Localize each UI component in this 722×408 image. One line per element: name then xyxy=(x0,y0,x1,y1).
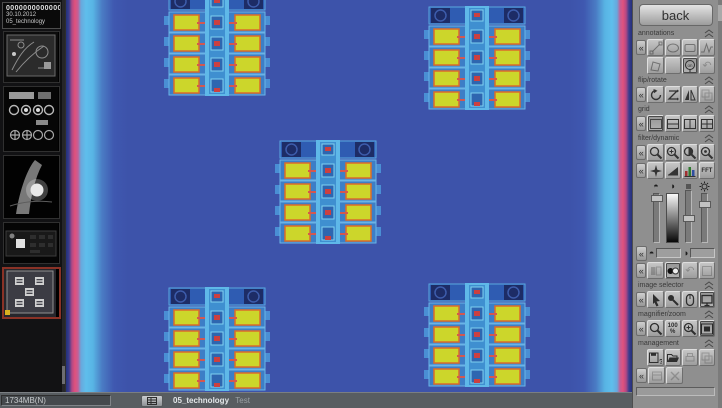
histogram-button[interactable] xyxy=(682,162,698,179)
grid-row: « xyxy=(636,115,715,132)
polygon-annotation-button[interactable] xyxy=(647,57,663,74)
svg-text:?: ? xyxy=(659,359,662,365)
image-selector-row: « xyxy=(636,291,715,308)
section-label: image selector xyxy=(638,282,684,289)
section-image-selector: image selector xyxy=(638,281,714,290)
zoom-smooth-button[interactable] xyxy=(647,144,663,161)
auto-dynamic-button xyxy=(647,262,663,279)
zoom-100-icon: 100% xyxy=(668,323,678,335)
section-filter-dynamic: filter/dynamic xyxy=(638,134,714,143)
collapse-left-button[interactable]: « xyxy=(636,40,646,55)
detail-slider-group xyxy=(698,181,712,243)
thumbnail-technology-array[interactable] xyxy=(2,267,61,319)
polygon-icon xyxy=(648,59,662,73)
panel-scrollbar-handle[interactable] xyxy=(718,5,722,21)
magnifier-icon xyxy=(649,322,663,336)
magnifier-zoom-row: « 100% xyxy=(636,320,715,337)
collapse-left-icon: « xyxy=(639,148,644,158)
duplicate-icon xyxy=(700,88,714,102)
fit-screen-icon xyxy=(700,322,714,336)
sidebar-scrollbar[interactable] xyxy=(62,0,65,392)
dynamic-toggle-row: « ↶ xyxy=(636,262,715,279)
undo-icon: ↶ xyxy=(685,264,694,277)
collapse-left-button[interactable]: « xyxy=(636,116,646,131)
printer-icon xyxy=(683,351,697,365)
magnifier-button[interactable] xyxy=(647,320,663,337)
undo-dynamic-button: ↶ xyxy=(682,262,698,279)
section-label: flip/rotate xyxy=(638,77,667,84)
svg-text:on: on xyxy=(687,62,693,67)
pcb-detail-image xyxy=(4,223,58,263)
collapse-left-button[interactable]: « xyxy=(636,321,646,336)
collapse-left-icon: « xyxy=(639,371,644,381)
section-collapse-icon[interactable] xyxy=(704,29,714,38)
zoom-in-button[interactable] xyxy=(682,320,698,337)
flip-horizontal-icon xyxy=(683,88,697,102)
collapse-left-icon: « xyxy=(639,90,644,100)
section-label: magnifier/zoom xyxy=(638,311,686,318)
memory-indicator: 1734MB(N) xyxy=(1,395,111,406)
zoom-sharpen-button[interactable] xyxy=(665,144,681,161)
section-annotations: annotations xyxy=(638,29,714,38)
pin-icon xyxy=(666,293,680,307)
collapse-left-button[interactable]: « xyxy=(636,87,646,102)
reset-icon xyxy=(700,264,714,278)
thumbnail-test-pattern[interactable] xyxy=(3,86,60,152)
annotation-extra-button xyxy=(665,57,681,74)
annotations-row-1: « xyxy=(636,39,715,56)
magnifier-sharpen-icon xyxy=(666,146,680,160)
save-prompt-button[interactable]: ? xyxy=(647,349,663,366)
collapse-left-icon: « xyxy=(639,249,644,259)
section-label: annotations xyxy=(638,30,674,37)
turbine-blade-image xyxy=(4,156,58,218)
profile-plot-button[interactable] xyxy=(699,39,715,56)
collapse-left-icon: « xyxy=(639,119,644,129)
export-icon xyxy=(700,351,714,365)
section-collapse-icon[interactable] xyxy=(704,281,714,290)
magnifier-contrast-icon xyxy=(683,146,697,160)
section-flip-rotate: flip/rotate xyxy=(638,76,714,85)
measure-line-icon xyxy=(649,41,663,55)
rectangle-annotation-button[interactable] xyxy=(682,39,698,56)
flip-vertical-button[interactable] xyxy=(665,86,681,103)
xray-device-bottom-left xyxy=(164,287,270,391)
panel-scrollbar[interactable] xyxy=(718,0,722,408)
collapse-left-icon: « xyxy=(639,324,644,334)
test-pattern-image xyxy=(4,87,58,151)
view-single-icon xyxy=(649,117,663,131)
filter-row-1: « xyxy=(636,144,715,161)
zoom-edge-button[interactable] xyxy=(699,144,715,161)
brightness-icon: ◓ xyxy=(653,181,658,192)
auto-dynamic-icon xyxy=(649,264,663,278)
scan-barcode: 00000000000000 xyxy=(6,5,57,12)
management-row-1: ? xyxy=(636,349,715,366)
contrast-gradient-slider[interactable] xyxy=(666,193,679,243)
thumbnail-turbine-blade[interactable] xyxy=(3,155,60,219)
duplicate-view-button xyxy=(699,86,715,103)
profile-plot-icon xyxy=(700,41,714,55)
rotate-left-icon xyxy=(649,88,663,102)
contrast-slider-group: ◑ xyxy=(665,181,679,243)
brightness-value-bar[interactable] xyxy=(656,248,681,258)
brightness-slider-handle[interactable] xyxy=(651,195,663,202)
undo-annotation-button: ↶ xyxy=(699,57,715,74)
measure-line-button[interactable] xyxy=(647,39,663,56)
dynamic-value-row: « ◓ ◑ xyxy=(636,245,715,261)
scan-info-header: 00000000000000 30.10.2012 05_technology xyxy=(2,2,61,29)
view-split-horizontal-button[interactable] xyxy=(665,115,681,132)
marker-flag-icon xyxy=(5,310,10,315)
active-image-label: 05_technology Test xyxy=(173,396,250,405)
view-split-vertical-button[interactable] xyxy=(682,115,698,132)
collapse-left-button[interactable]: « xyxy=(636,263,646,278)
gradation-wedge-icon xyxy=(666,164,680,178)
histogram-icon xyxy=(683,164,697,178)
flip-horizontal-button[interactable] xyxy=(682,86,698,103)
delete-button xyxy=(666,367,683,384)
brightness-slider[interactable] xyxy=(653,193,660,243)
back-button[interactable]: back xyxy=(639,4,713,26)
status-bar: 1734MB(N) 05_technology Test xyxy=(0,392,632,408)
sharpen-star-icon xyxy=(649,164,663,178)
section-magnifier-zoom: magnifier/zoom xyxy=(638,310,714,319)
thumbnail-pcb-detail[interactable] xyxy=(3,222,60,264)
xray-device-center xyxy=(275,140,381,244)
monitor-icon xyxy=(700,293,714,307)
brightness-slider-group: ◓ xyxy=(649,181,663,243)
view-single-button[interactable] xyxy=(647,115,663,132)
collapse-left-button[interactable]: « xyxy=(636,145,646,160)
section-collapse-icon[interactable] xyxy=(704,105,714,114)
rectangle-icon xyxy=(683,41,697,55)
full-image-view-button[interactable] xyxy=(699,291,715,308)
open-image-button[interactable] xyxy=(665,349,681,366)
xray-device-top-left xyxy=(164,0,270,96)
contrast-value-bar[interactable] xyxy=(690,248,715,258)
scan-name: 05_technology xyxy=(6,19,57,26)
detail-gear-icon xyxy=(699,181,710,192)
rotate-left-button[interactable] xyxy=(647,86,663,103)
detail-slider[interactable] xyxy=(701,193,708,243)
print-button xyxy=(682,349,698,366)
xray-device-bottom-right xyxy=(424,283,530,387)
section-label: grid xyxy=(638,106,650,113)
tool-panel: back annotations « on ↶ flip/rotate « xyxy=(632,0,722,408)
brightness-icon: ◓ xyxy=(649,248,654,258)
ellipse-annotation-button[interactable] xyxy=(665,39,681,56)
reset-dynamic-button xyxy=(699,262,715,279)
technology-array-image xyxy=(4,269,56,317)
grid-icon xyxy=(147,397,157,405)
gradation-curve-button[interactable] xyxy=(665,162,681,179)
sharpen-filter-button[interactable] xyxy=(647,162,663,179)
export-button xyxy=(699,349,715,366)
dynamic-sliders: ◓ ◑ xyxy=(649,181,712,243)
fit-to-screen-button[interactable] xyxy=(699,320,715,337)
view-split-horizontal-icon xyxy=(666,117,680,131)
annotations-row-2: on ↶ xyxy=(636,57,715,74)
collapse-left-button[interactable]: « xyxy=(636,292,646,307)
gamma-slider[interactable] xyxy=(685,190,692,243)
xray-image-viewport[interactable] xyxy=(66,0,632,392)
cursor-icon xyxy=(649,293,663,307)
zoom-100-button[interactable]: 100% xyxy=(665,320,681,337)
view-quad-icon xyxy=(700,117,714,131)
collapse-left-button[interactable]: « xyxy=(636,368,647,383)
magnifier-smooth-icon xyxy=(649,146,663,160)
mouse-icon xyxy=(683,293,697,307)
archive-icon xyxy=(650,369,664,383)
detail-slider-handle[interactable] xyxy=(699,201,711,208)
section-label: filter/dynamic xyxy=(638,135,679,142)
on-toggle-icon: on xyxy=(683,59,697,73)
flip-rotate-row: « xyxy=(636,86,715,103)
pin-image-button[interactable] xyxy=(665,291,681,308)
section-grid: grid xyxy=(638,105,714,114)
fft-filter-button[interactable]: FFT xyxy=(699,162,715,179)
undo-icon: ↶ xyxy=(702,59,711,72)
collapse-left-icon: « xyxy=(639,43,644,53)
black-white-balls-icon xyxy=(666,264,680,278)
active-image-name: 05_technology xyxy=(173,396,229,405)
zoom-contrast-button[interactable] xyxy=(682,144,698,161)
select-cursor-button[interactable] xyxy=(647,291,663,308)
panel-progress-bar xyxy=(636,387,715,396)
collapse-left-icon: « xyxy=(639,266,644,276)
section-collapse-icon[interactable] xyxy=(704,310,714,319)
active-image-state: Test xyxy=(235,396,250,405)
gamma-icon xyxy=(686,184,691,189)
mouse-select-button[interactable] xyxy=(682,291,698,308)
thumbnail-sidebar: 00000000000000 30.10.2012 05_technology xyxy=(0,0,66,392)
flip-vertical-icon xyxy=(666,88,680,102)
view-quad-button[interactable] xyxy=(699,115,715,132)
archive-button xyxy=(648,367,665,384)
gamma-slider-group xyxy=(682,181,696,243)
magnifier-plus-icon xyxy=(683,322,697,336)
ellipse-icon xyxy=(666,41,680,55)
section-collapse-icon[interactable] xyxy=(704,134,714,143)
collapse-left-button[interactable]: « xyxy=(636,163,646,178)
section-management: management xyxy=(638,339,714,348)
management-row-2: « xyxy=(636,367,715,384)
xray-device-top-right xyxy=(424,6,530,110)
save-question-icon: ? xyxy=(648,351,662,365)
gamma-slider-handle[interactable] xyxy=(683,215,695,222)
section-collapse-icon[interactable] xyxy=(704,339,714,348)
delete-icon xyxy=(668,369,682,383)
xray-workstation-window: 00000000000000 30.10.2012 05_technology xyxy=(0,0,722,408)
view-split-vertical-icon xyxy=(683,117,697,131)
magnifier-edge-icon xyxy=(700,146,714,160)
fft-icon: FFT xyxy=(701,168,712,174)
thumbnail-circuit-board[interactable] xyxy=(3,31,60,83)
filter-row-2: « FFT xyxy=(636,162,715,179)
collapse-left-icon: « xyxy=(639,295,644,305)
sidebar-scrollbar-handle[interactable] xyxy=(62,366,65,384)
collapse-left-button[interactable]: « xyxy=(636,246,647,261)
open-folder-icon xyxy=(666,351,680,365)
statusbar-grid-button[interactable] xyxy=(141,395,163,407)
scan-date: 30.10.2012 xyxy=(6,12,57,19)
section-collapse-icon[interactable] xyxy=(704,76,714,85)
section-label: management xyxy=(638,340,679,347)
contrast-icon: ◑ xyxy=(683,248,688,258)
circuit-board-image xyxy=(4,32,58,82)
black-white-balance-button[interactable] xyxy=(665,262,681,279)
annotations-on-toggle[interactable]: on xyxy=(682,57,698,74)
collapse-left-icon: « xyxy=(639,166,644,176)
contrast-icon: ◑ xyxy=(670,181,675,192)
